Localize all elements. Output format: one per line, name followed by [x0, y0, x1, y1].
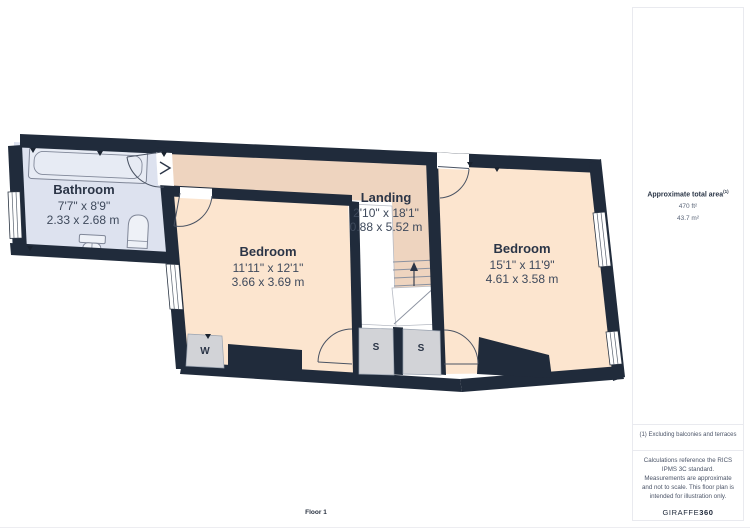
window-bathroom-left [8, 192, 22, 239]
svg-text:3.66 x 3.69 m: 3.66 x 3.69 m [232, 275, 305, 289]
total-area-block: Approximate total area(1) 470 ft² 43.7 m… [633, 189, 743, 222]
bedroom-left-door-gap [180, 187, 212, 200]
total-area-title-text: Approximate total area [647, 191, 723, 198]
closet-w-label: W [200, 346, 210, 357]
giraffe360-logo: GIRAFFE360 [641, 508, 735, 519]
disclaimer-block: Calculations reference the RICS IPMS 3C … [641, 457, 735, 519]
sink [127, 214, 149, 248]
svg-text:Bathroom: Bathroom [53, 182, 114, 197]
disclaimer-text: Calculations reference the RICS IPMS 3C … [641, 457, 735, 502]
floor-label: Floor 1 [266, 509, 366, 516]
info-panel: Approximate total area(1) 470 ft² 43.7 m… [632, 7, 744, 521]
svg-text:7'7" x 8'9": 7'7" x 8'9" [58, 199, 110, 213]
svg-text:Bedroom: Bedroom [239, 244, 296, 259]
svg-text:0.88 x 5.52 m: 0.88 x 5.52 m [350, 220, 423, 234]
bathroom-label: Bathroom 7'7" x 8'9" 2.33 x 2.68 m [47, 182, 120, 227]
closet-s1-label: S [373, 342, 380, 353]
total-area-title: Approximate total area(1) [633, 189, 743, 198]
bedroom-right-label: Bedroom 15'1" x 11'9" 4.61 x 3.58 m [486, 241, 559, 286]
area-footnote: (1) Excluding balconies and terraces [637, 432, 739, 438]
brand-regular: GIRAFFE [662, 508, 699, 517]
panel-divider-2 [633, 450, 743, 451]
closet-s2-label: S [418, 343, 425, 354]
bathroom-door-gap [156, 152, 174, 186]
wall-between-closets [393, 327, 403, 375]
brand-bold: 360 [699, 508, 713, 517]
svg-text:Landing: Landing [361, 190, 412, 205]
svg-text:15'1" x 11'9": 15'1" x 11'9" [490, 258, 555, 272]
page-bottom-divider [0, 527, 750, 528]
total-area-metric: 43.7 m² [633, 215, 743, 222]
svg-text:11'11" x 12'1": 11'11" x 12'1" [233, 261, 304, 275]
svg-text:Bedroom: Bedroom [493, 241, 550, 256]
floor-plan-page: W S S Bathroom 7'7" x 8'9" 2.33 x 2.68 m… [0, 0, 750, 530]
total-area-imperial: 470 ft² [633, 203, 743, 210]
svg-text:2'10" x 18'1": 2'10" x 18'1" [353, 206, 419, 220]
bedroom-left-label: Bedroom 11'11" x 12'1" 3.66 x 3.69 m [232, 244, 305, 289]
wall-chunk-left [228, 344, 302, 380]
svg-text:2.33 x 2.68 m: 2.33 x 2.68 m [47, 213, 120, 227]
panel-divider-1 [633, 424, 743, 425]
svg-text:4.61 x 3.58 m: 4.61 x 3.58 m [486, 272, 559, 286]
total-area-superscript: (1) [723, 189, 729, 194]
